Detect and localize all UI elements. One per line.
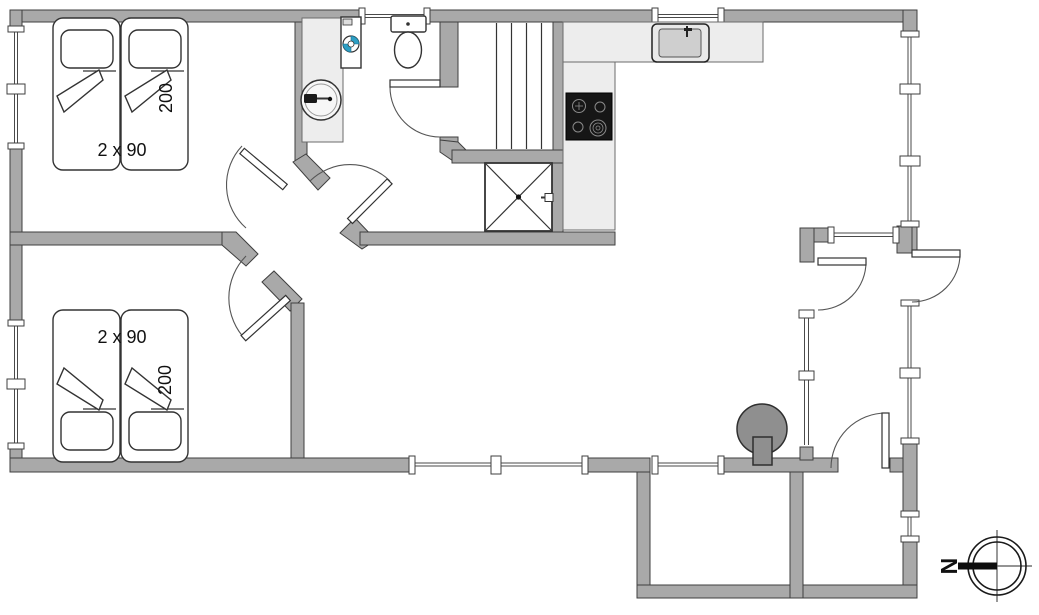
cooktop-icon bbox=[566, 93, 612, 140]
bed-length-label: 200 bbox=[156, 83, 176, 113]
washing-machine-icon bbox=[341, 17, 361, 68]
window-icon bbox=[7, 320, 25, 449]
wood-stove-icon bbox=[737, 404, 787, 465]
door-swing-icon bbox=[831, 413, 889, 468]
window-icon bbox=[828, 227, 899, 243]
bedroom2: 2 x 90 200 bbox=[53, 310, 188, 462]
compass-rose-icon: N bbox=[936, 530, 1032, 602]
window-icon bbox=[901, 511, 919, 542]
window-icon bbox=[7, 26, 25, 149]
kitchen-counter bbox=[563, 62, 615, 230]
floor-plan-canvas: 2 x 90 200 2 x 90 200 bbox=[0, 0, 1039, 615]
door-swing-icon bbox=[818, 258, 866, 310]
window-icon bbox=[799, 310, 814, 445]
kitchen bbox=[563, 22, 763, 230]
living-room bbox=[737, 404, 787, 465]
door-swing-icon bbox=[227, 146, 288, 228]
window-icon bbox=[900, 300, 920, 444]
compass-north-label: N bbox=[936, 558, 962, 575]
door-swing-icon bbox=[390, 80, 440, 137]
compass-north-pointer bbox=[958, 563, 997, 570]
shower-cabin-icon bbox=[485, 163, 553, 231]
window-icon bbox=[900, 31, 920, 227]
terrace-walls bbox=[637, 472, 917, 598]
pillow-icon bbox=[129, 412, 181, 450]
kitchen-sink-icon bbox=[652, 24, 709, 62]
pillow-icon bbox=[61, 412, 113, 450]
bedroom1: 2 x 90 200 bbox=[53, 18, 188, 170]
floor-plan-drawing: 2 x 90 200 2 x 90 200 bbox=[0, 0, 1039, 615]
window-icon bbox=[652, 456, 724, 474]
bed-width-label: 2 x 90 bbox=[97, 140, 146, 160]
wash-basin-icon bbox=[301, 80, 341, 120]
bed-width-label: 2 x 90 bbox=[97, 327, 146, 347]
sauna bbox=[497, 23, 542, 149]
bathroom bbox=[301, 16, 426, 142]
sauna-bench-icon bbox=[497, 23, 542, 149]
toilet-icon bbox=[391, 16, 426, 68]
door-swing-icon bbox=[912, 250, 960, 302]
window-icon bbox=[409, 456, 588, 474]
pillow-icon bbox=[129, 30, 181, 68]
pillow-icon bbox=[61, 30, 113, 68]
bed-length-label: 200 bbox=[155, 365, 175, 395]
